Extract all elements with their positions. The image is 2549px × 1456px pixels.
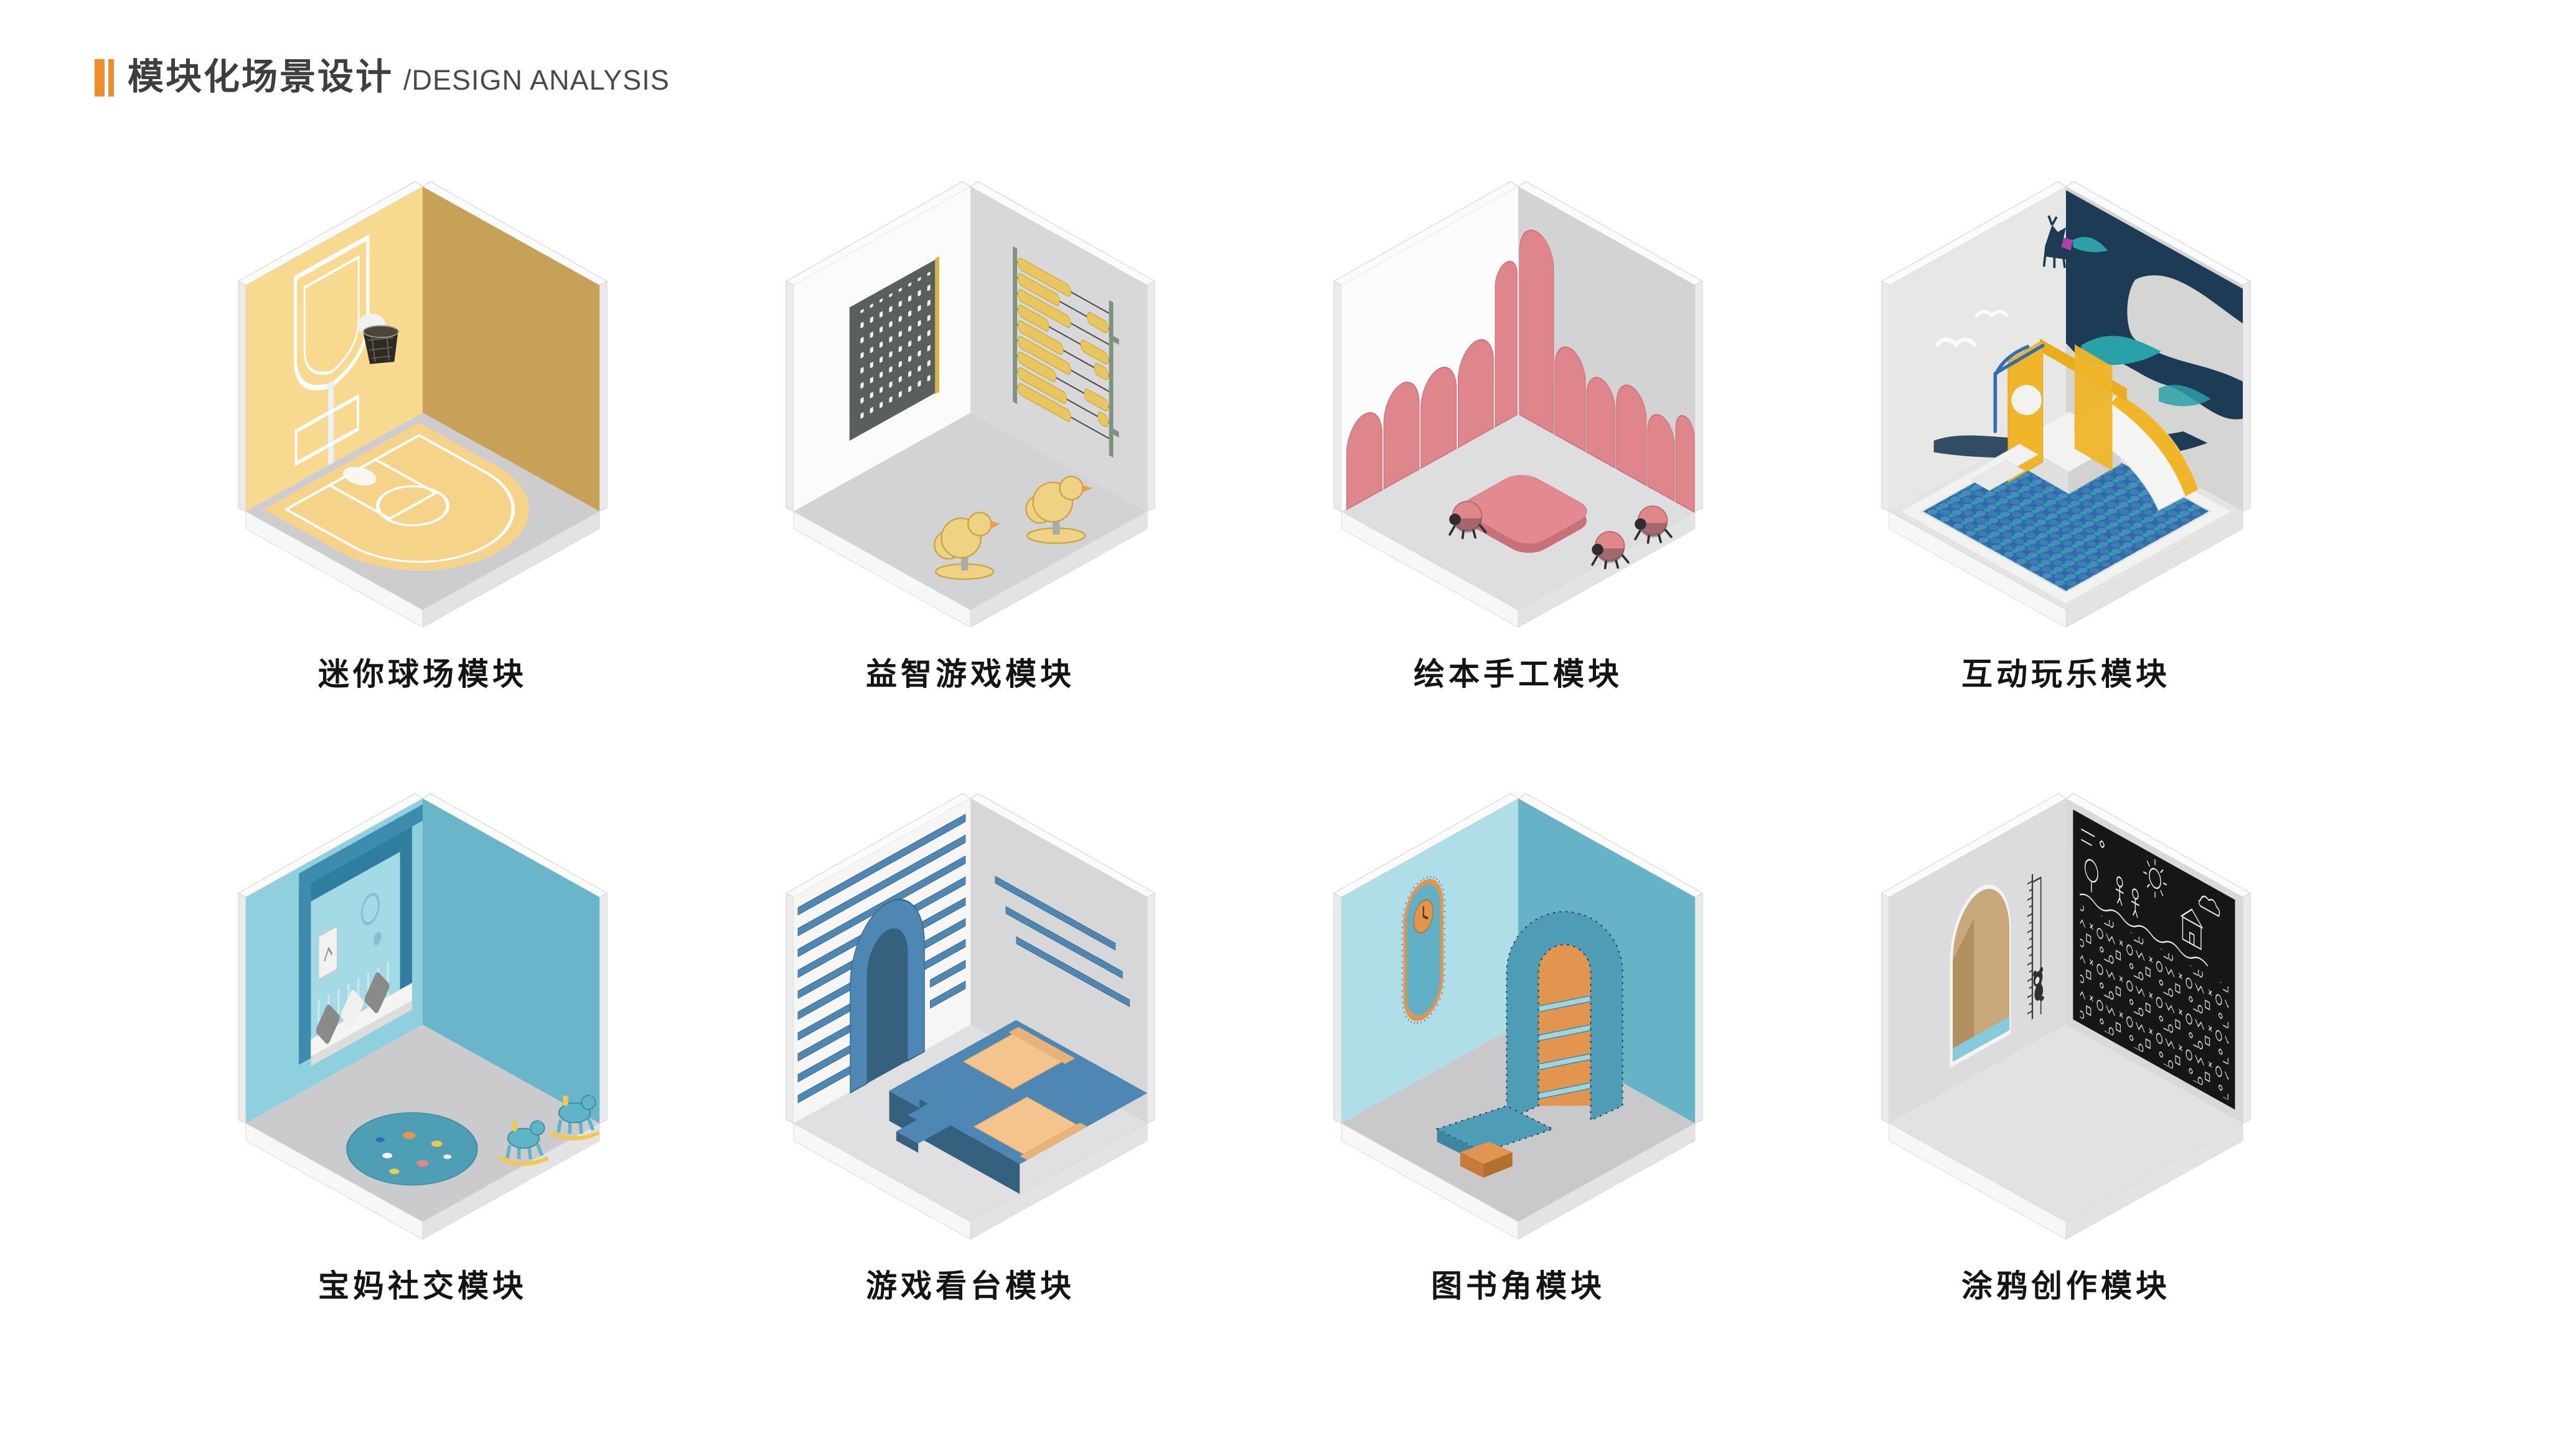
module-card-interactive-play: 互动玩乐模块 bbox=[1792, 169, 2340, 694]
module-label: 迷你球场模块 bbox=[318, 649, 527, 694]
mini-court-isometric-illustration bbox=[167, 169, 678, 633]
module-card-mini-court: 迷你球场模块 bbox=[149, 169, 697, 694]
module-card-mom-social: 宝妈社交模块 bbox=[149, 781, 697, 1306]
mom-social-isometric-illustration bbox=[167, 781, 678, 1245]
module-card-graffiti: 涂鸦创作模块 bbox=[1792, 781, 2340, 1306]
header-accent-bars-icon bbox=[95, 59, 114, 96]
module-label: 游戏看台模块 bbox=[866, 1261, 1075, 1306]
module-card-book-corner: 图书角模块 bbox=[1244, 781, 1792, 1306]
module-card-book-craft: 绘本手工模块 bbox=[1244, 169, 1792, 694]
modules-grid: 迷你球场模块 bbox=[149, 169, 2340, 1306]
module-label: 图书角模块 bbox=[1431, 1261, 1605, 1306]
book-craft-isometric-illustration bbox=[1263, 169, 1773, 633]
grandstand-isometric-illustration bbox=[715, 781, 1226, 1245]
page-root: { "header": { "title_zh": "模块化场景设计", "su… bbox=[0, 0, 2549, 1456]
puzzle-games-isometric-illustration bbox=[715, 169, 1226, 633]
module-label: 绘本手工模块 bbox=[1414, 649, 1623, 694]
module-label: 互动玩乐模块 bbox=[1961, 649, 2171, 694]
interactive-play-isometric-illustration bbox=[1811, 169, 2321, 633]
graffiti-isometric-illustration bbox=[1811, 781, 2321, 1245]
page-subtitle: /DESIGN ANALYSIS bbox=[403, 64, 670, 96]
module-card-grandstand: 游戏看台模块 bbox=[697, 781, 1244, 1306]
page-header: 模块化场景设计 /DESIGN ANALYSIS bbox=[95, 59, 670, 96]
page-title: 模块化场景设计 bbox=[128, 59, 393, 96]
module-label: 涂鸦创作模块 bbox=[1961, 1261, 2171, 1306]
module-label: 宝妈社交模块 bbox=[318, 1261, 527, 1306]
module-label: 益智游戏模块 bbox=[866, 649, 1075, 694]
module-card-puzzle-games: 益智游戏模块 bbox=[697, 169, 1244, 694]
book-corner-isometric-illustration bbox=[1263, 781, 1773, 1245]
